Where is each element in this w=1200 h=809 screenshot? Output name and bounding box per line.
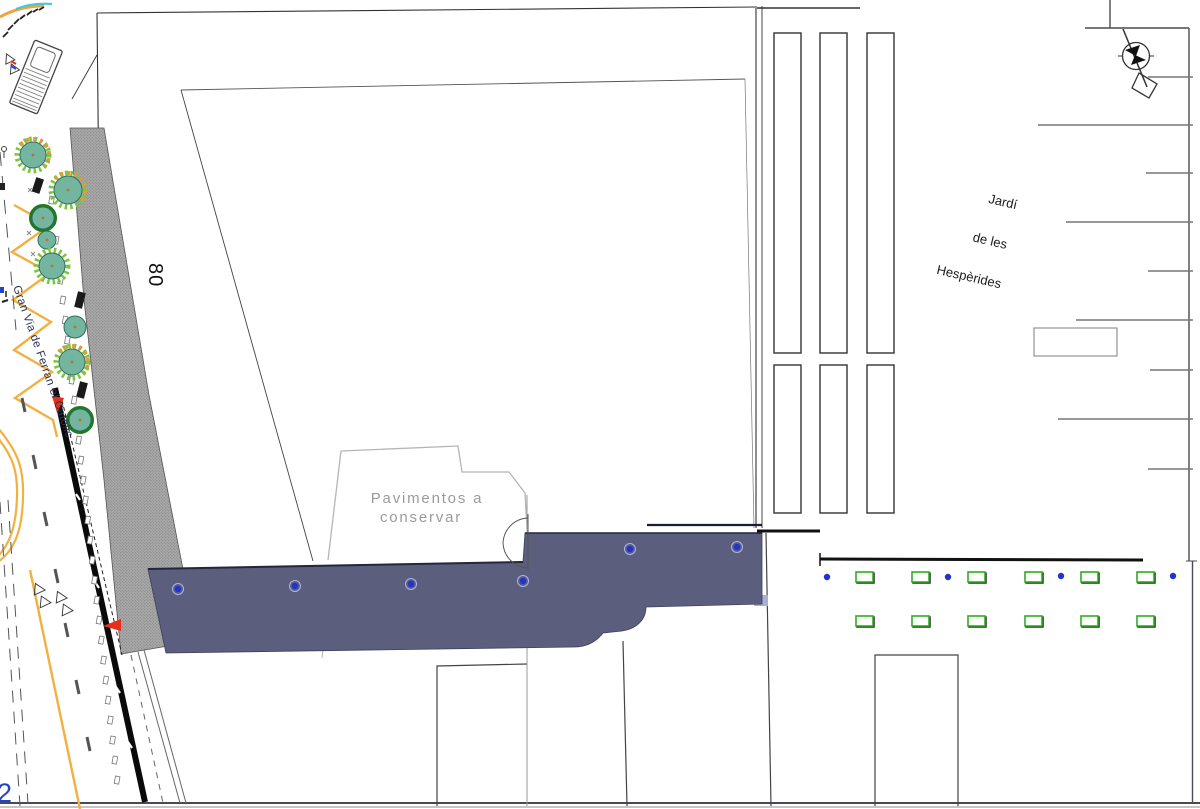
jardi-label-line2: de les — [971, 229, 1009, 252]
road-dash — [89, 556, 95, 564]
planter — [912, 616, 929, 626]
garden-bed — [774, 365, 801, 513]
road-dash — [112, 756, 118, 764]
tree-trunk — [51, 265, 54, 268]
road-dash — [80, 476, 86, 484]
block-number-label: 80 — [144, 263, 166, 287]
road-dash — [98, 636, 104, 644]
pavement-marker — [520, 578, 526, 584]
road-dash — [85, 516, 91, 524]
planter — [912, 572, 929, 582]
tree — [64, 316, 86, 338]
corner-mark-label: 2 — [0, 778, 12, 808]
bus-bay-outer — [0, 428, 23, 562]
planter — [968, 616, 985, 626]
garden-bed — [867, 33, 894, 353]
plaza-south-edge — [820, 553, 1143, 566]
pavement-marker — [292, 583, 298, 589]
road-dash — [60, 296, 66, 304]
tree — [36, 250, 68, 282]
road-dash — [83, 496, 89, 504]
tree-trunk — [71, 361, 74, 364]
garden-bed-group — [774, 33, 894, 513]
road-dash — [114, 776, 120, 784]
drawing-frame — [0, 0, 1200, 807]
tree-trunk — [79, 419, 82, 422]
tree-trunk — [42, 217, 45, 220]
parcel-boundaries — [72, 6, 860, 564]
garden-bed — [867, 365, 894, 513]
road-dash — [105, 696, 111, 704]
pavement-marker — [408, 581, 414, 587]
planter — [968, 572, 985, 582]
planter — [1081, 616, 1098, 626]
pavement-area — [148, 533, 768, 653]
tree-trunk — [67, 189, 70, 192]
planter — [1081, 572, 1098, 582]
pavement-marker — [734, 544, 740, 550]
tree — [38, 231, 56, 249]
garden-bed — [820, 365, 847, 513]
side-structure — [1034, 328, 1117, 356]
street-markings — [0, 4, 186, 809]
plaza-dot — [1058, 573, 1064, 579]
tree — [31, 206, 56, 231]
planter-group — [856, 572, 1155, 627]
plaza-dot — [824, 574, 830, 580]
site-plan-drawing: Gran Via de Ferran el Catòlic 80 Pavimen… — [0, 0, 1200, 809]
pavement-polygon — [148, 533, 762, 653]
north-arrow-icon — [1118, 29, 1157, 98]
plaza-dot — [1170, 573, 1176, 579]
garden-bed — [774, 33, 801, 353]
parking-line-group — [1038, 77, 1193, 469]
tree-trunk — [46, 239, 49, 242]
plaza-dot — [945, 574, 951, 580]
pavimentos-label-line1: Pavimentos a — [371, 490, 483, 507]
road-dash — [103, 676, 109, 684]
road-dash — [71, 396, 77, 404]
tree — [17, 132, 56, 171]
garden-bed — [820, 33, 847, 353]
road-dash — [110, 736, 116, 744]
tree-trunk — [74, 326, 77, 329]
planter — [1137, 616, 1154, 626]
planter — [1137, 572, 1154, 582]
road-dash — [92, 576, 98, 584]
jardi-label-line1: Jardí — [987, 191, 1019, 212]
road-dash — [76, 436, 82, 444]
site-plan-canvas: Gran Via de Ferran el Catòlic 80 Pavimen… — [0, 0, 1200, 809]
road-dash — [87, 536, 93, 544]
planter — [1025, 572, 1042, 582]
jardi-label-line3: Hespèrides — [935, 262, 1003, 292]
tree-trunk — [32, 154, 35, 157]
kiosk-ramp — [9, 40, 62, 114]
bus-bay-inner — [0, 438, 17, 556]
road-dash — [94, 596, 100, 604]
planter — [856, 616, 873, 626]
yellow-lane-line — [30, 570, 80, 809]
road-dash — [65, 336, 71, 344]
road-dash — [96, 616, 102, 624]
road-dash — [78, 456, 84, 464]
pavement-marker — [627, 546, 633, 552]
road-dash — [101, 656, 107, 664]
pavimentos-label-line2: conservar — [380, 509, 462, 526]
planter — [1025, 616, 1042, 626]
road-dash — [107, 716, 113, 724]
pavement-marker — [175, 586, 181, 592]
plaza-dot-group — [824, 573, 1176, 580]
planter — [856, 572, 873, 582]
